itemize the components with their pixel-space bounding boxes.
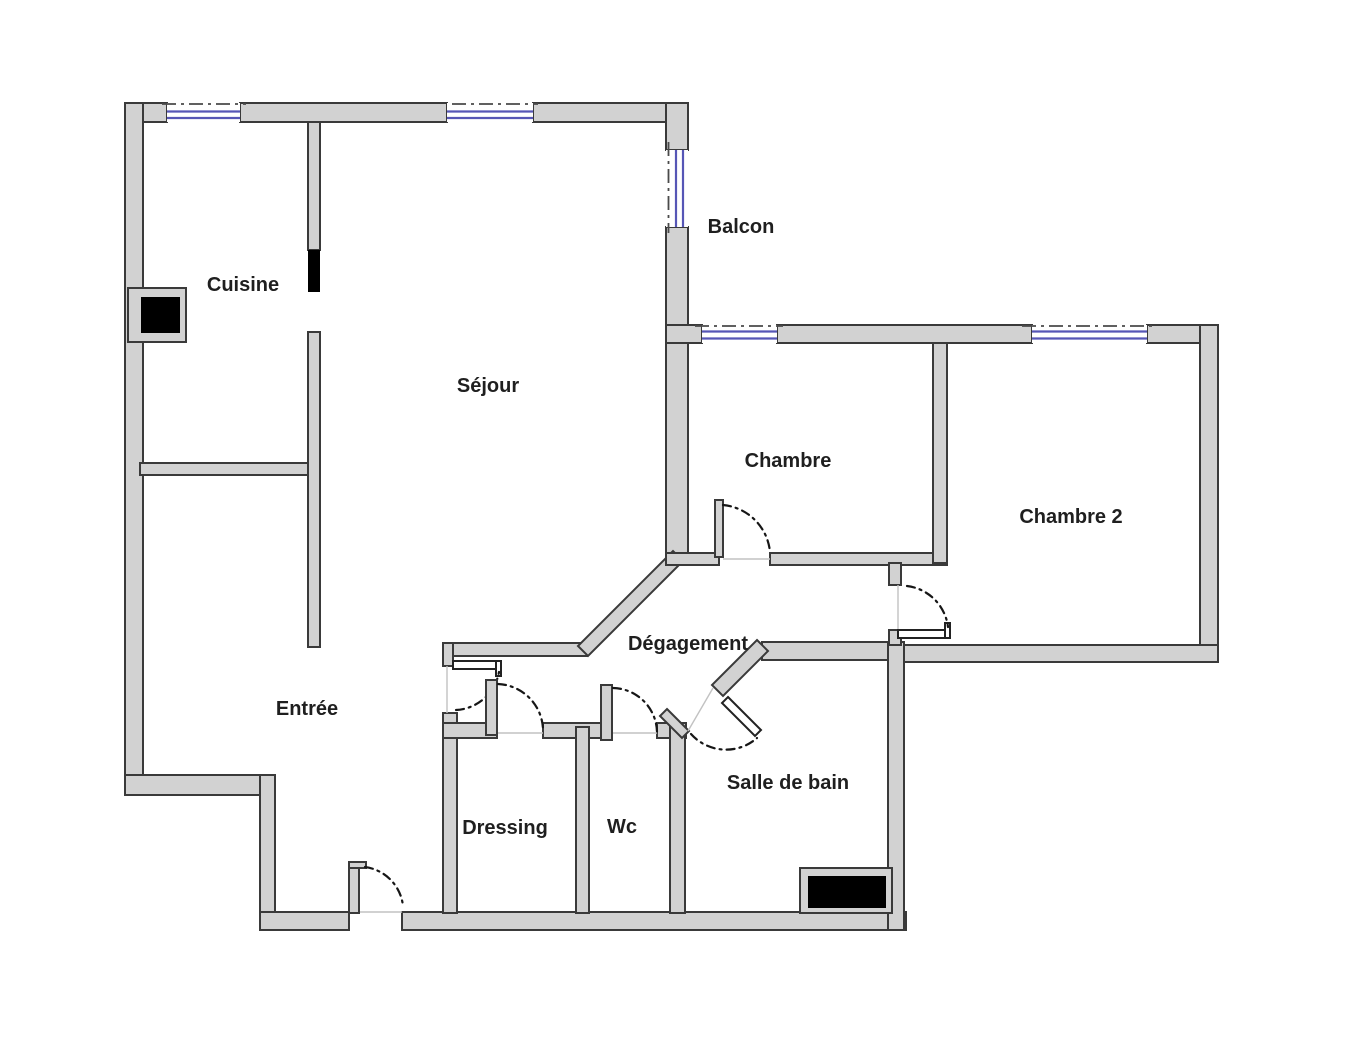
wall-segment: [770, 553, 947, 565]
wall-segment: [666, 227, 688, 563]
wall-segment: [125, 103, 143, 793]
wall-segment: [902, 645, 1218, 662]
wall-duct-segment: [308, 250, 320, 292]
door-swing-arc: [723, 505, 770, 552]
room-label-chambre-2: Chambre 2: [1019, 506, 1122, 528]
wall-segment: [533, 103, 688, 122]
room-labels: Cuisine Séjour Balcon Chambre Chambre 2 …: [207, 216, 1123, 839]
window-sejour: [447, 103, 533, 122]
door-entrance: [349, 862, 403, 913]
door-salle-de-bain: [688, 688, 761, 750]
wall-segment: [260, 912, 349, 930]
door-leaf: [898, 630, 950, 638]
door-opening-line: [688, 688, 713, 731]
wall-segment: [443, 643, 587, 656]
wall-segment: [140, 463, 308, 475]
room-label-entree: Entrée: [276, 698, 338, 720]
wall-segment: [402, 912, 906, 930]
door-swing-arc: [691, 734, 757, 750]
window-chambre-2: [1032, 325, 1147, 343]
wall-segment: [762, 642, 890, 660]
wall-segment: [443, 643, 453, 666]
door-chambre: [715, 500, 770, 559]
door-swing-arc: [907, 586, 948, 627]
wall-segment: [889, 563, 901, 585]
room-label-balcon: Balcon: [708, 216, 775, 238]
door-swing-arc: [365, 867, 403, 906]
wall-segment: [125, 775, 275, 795]
wall-segment: [666, 325, 702, 343]
room-label-wc: Wc: [607, 816, 637, 838]
door-leaf: [601, 685, 612, 740]
room-label-sejour: Séjour: [457, 375, 519, 397]
wall-segment: [260, 775, 275, 915]
wall-segment: [666, 553, 719, 565]
room-label-chambre: Chambre: [745, 450, 832, 472]
room-label-cuisine: Cuisine: [207, 274, 279, 296]
door-leaf: [453, 661, 501, 669]
wall-segment: [777, 325, 1032, 343]
door-leaf: [715, 500, 723, 557]
door-swing-arc: [613, 688, 657, 732]
floor-plan-canvas: Cuisine Séjour Balcon Chambre Chambre 2 …: [0, 0, 1354, 1056]
wall-segment: [308, 332, 320, 647]
room-label-degagement: Dégagement: [628, 633, 748, 655]
window-opening: [1032, 325, 1147, 343]
window-opening: [702, 325, 777, 343]
duct-fill: [141, 297, 180, 333]
door-dressing: [486, 680, 543, 735]
wall-segment: [576, 727, 589, 913]
wall-segment: [240, 103, 447, 122]
wall-segment: [543, 723, 602, 738]
wall-segment: [1200, 325, 1218, 662]
room-label-salle-de-bain: Salle de bain: [727, 772, 849, 794]
wall-segment: [308, 122, 320, 250]
door-leaf: [349, 862, 359, 913]
door-leaf: [486, 680, 497, 735]
door-leaf-lip: [349, 862, 366, 868]
window-chambre: [702, 325, 777, 343]
wall-segment: [933, 343, 947, 563]
duct-fill: [808, 876, 886, 908]
duct-salle-de-bain: [800, 868, 892, 913]
door-leaf: [722, 697, 761, 736]
duct-cuisine: [128, 288, 186, 342]
wall-segment: [670, 727, 685, 913]
window-cuisine: [167, 103, 240, 122]
floor-plan-page: Cuisine Séjour Balcon Chambre Chambre 2 …: [0, 0, 1354, 1056]
door-chambre-2: [898, 585, 950, 638]
wall-segment: [443, 713, 457, 913]
room-label-dressing: Dressing: [462, 817, 548, 839]
door-wc: [601, 685, 657, 740]
door-swing-arc: [498, 684, 543, 729]
